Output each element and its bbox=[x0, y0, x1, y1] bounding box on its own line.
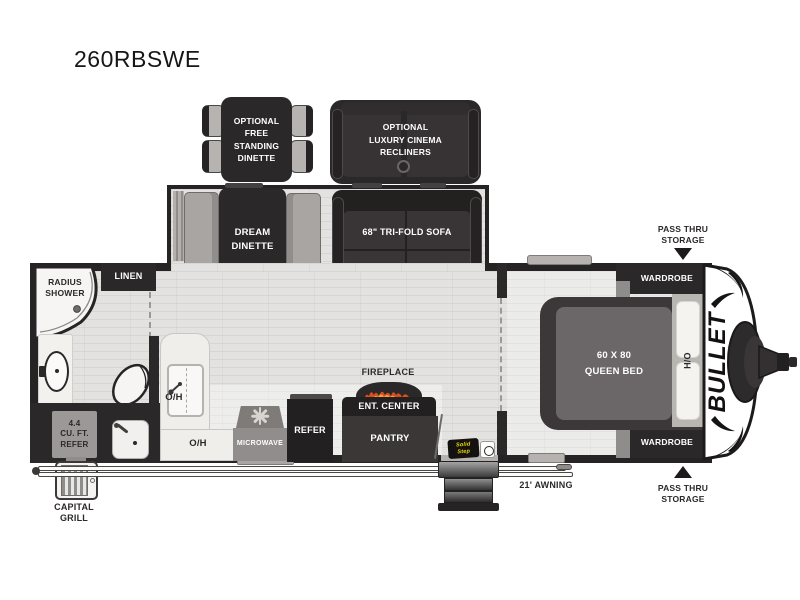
slideout-opening-patch bbox=[171, 263, 485, 272]
awning-label: 21' AWNING bbox=[519, 480, 572, 491]
sofa-label-wrap: 68" TRI-FOLD SOFA bbox=[340, 226, 474, 240]
optional-recliners-label: OPTIONAL LUXURY CINEMA RECLINERS bbox=[369, 121, 442, 159]
wardrobe-bottom-label: WARDROBE bbox=[641, 437, 693, 448]
bedroom-window-bottom bbox=[528, 453, 565, 463]
fireplace-label-wrap: FIREPLACE bbox=[356, 367, 420, 378]
cert-badge-icon bbox=[484, 446, 494, 456]
linen-label: LINEN bbox=[115, 271, 143, 282]
capital-grill-label: CAPITAL GRILL bbox=[54, 502, 94, 525]
trifold-sofa-label: 68" TRI-FOLD SOFA bbox=[362, 227, 451, 238]
pass-thru-top-arrow bbox=[674, 248, 692, 260]
entry-step-2 bbox=[444, 478, 493, 491]
wardrobe-bottom: WARDROBE bbox=[630, 427, 704, 458]
pass-thru-bottom-arrow bbox=[674, 466, 692, 478]
pantry: PANTRY bbox=[342, 416, 438, 462]
pass-thru-bottom-label-wrap: PASS THRU STORAGE bbox=[649, 482, 717, 506]
cert-badge bbox=[480, 441, 495, 458]
bedroom-door-track bbox=[500, 298, 504, 411]
overhead-lower-label: O/H bbox=[189, 438, 207, 450]
recliners-label-wrap: OPTIONAL LUXURY CINEMA RECLINERS bbox=[340, 114, 471, 166]
slideout-rail bbox=[173, 191, 184, 261]
ent-center-label: ENT. CENTER bbox=[358, 401, 419, 412]
grill-label-wrap: CAPITAL GRILL bbox=[44, 501, 104, 525]
slideout-vent-tab-3 bbox=[420, 183, 446, 188]
overhead-upper-label: O/H bbox=[165, 392, 183, 404]
outdoor-refer-label: 4.4 CU. FT. REFER bbox=[60, 419, 89, 450]
awning-end-cap bbox=[556, 464, 572, 470]
page-title: 260RBSWE bbox=[74, 46, 214, 72]
brand-logo: BULLET bbox=[704, 310, 731, 412]
bedroom-window-top bbox=[527, 255, 592, 265]
entry-step-3 bbox=[444, 491, 493, 503]
queen-bed-mattress: 60 X 80 QUEEN BED bbox=[556, 307, 672, 420]
bedroom-wall-stub-bottom bbox=[497, 411, 507, 455]
fireplace-label: FIREPLACE bbox=[362, 367, 415, 378]
entry-step-1 bbox=[438, 461, 499, 478]
dinette-bench-right bbox=[286, 193, 321, 268]
refer: REFER bbox=[287, 399, 333, 462]
outdoor-refer: 4.4 CU. FT. REFER bbox=[52, 411, 97, 458]
bathroom-sink-drain bbox=[55, 369, 59, 373]
microwave: MICROWAVE bbox=[233, 428, 287, 461]
entry-step-base bbox=[438, 503, 499, 511]
wardrobe-top: WARDROBE bbox=[630, 263, 704, 294]
slideout-vent-tab-2 bbox=[352, 183, 382, 188]
optional-dinette-label: OPTIONAL FREE STANDING DINETTE bbox=[234, 115, 280, 164]
solid-step-label: Solid Step bbox=[456, 442, 471, 455]
dinette-bench-left bbox=[184, 192, 219, 268]
ent-center: ENT. CENTER bbox=[342, 397, 436, 416]
burner-icon bbox=[251, 407, 269, 425]
solid-step-badge: Solid Step bbox=[447, 438, 479, 459]
pass-thru-top-label-wrap: PASS THRU STORAGE bbox=[649, 223, 717, 247]
pass-thru-top-label: PASS THRU STORAGE bbox=[658, 224, 708, 245]
hitch bbox=[728, 322, 797, 402]
dinette-chair-bottom-right bbox=[290, 140, 313, 173]
linen-cabinet: LINEN bbox=[101, 263, 156, 291]
pantry-label: PANTRY bbox=[370, 433, 409, 445]
bedroom-wall-stub-top bbox=[497, 263, 507, 298]
front-cap: BULLET bbox=[695, 246, 800, 478]
awning-knob bbox=[32, 467, 40, 475]
grill-knob bbox=[90, 478, 95, 483]
bathroom-faucet bbox=[39, 366, 45, 377]
floorplan-canvas: 260RBSWE OPTIONAL FREE STANDING DINETTE … bbox=[0, 0, 800, 600]
shower-label-wrap: RADIUS SHOWER bbox=[34, 276, 96, 300]
microwave-label: MICROWAVE bbox=[237, 440, 283, 449]
bedroom-gray-column-bottom bbox=[616, 427, 630, 458]
wardrobe-top-label: WARDROBE bbox=[641, 273, 693, 284]
refer-label: REFER bbox=[294, 425, 326, 436]
dinette-chair-top-right bbox=[290, 105, 313, 137]
overhead-upper-wrap: O/H bbox=[158, 392, 190, 404]
radius-shower-label: RADIUS SHOWER bbox=[45, 277, 84, 298]
outdoor-faucet-base bbox=[114, 423, 119, 428]
pass-thru-bottom-label: PASS THRU STORAGE bbox=[658, 483, 708, 504]
awning-label-wrap: 21' AWNING bbox=[510, 480, 582, 492]
bed-overhead-label: H/O bbox=[682, 352, 693, 369]
dream-dinette-label: DREAM DINETTE bbox=[231, 226, 273, 255]
outdoor-sink-drain bbox=[133, 441, 137, 445]
overhead-lower-wrap: O/H bbox=[181, 438, 215, 450]
bedroom-wall-filler-top bbox=[616, 263, 630, 281]
bathroom-door-track bbox=[149, 292, 153, 338]
optional-dinette-table: OPTIONAL FREE STANDING DINETTE bbox=[221, 97, 292, 182]
queen-bed-label: 60 X 80 QUEEN BED bbox=[585, 348, 643, 378]
sofa-seat-edge bbox=[343, 249, 471, 251]
